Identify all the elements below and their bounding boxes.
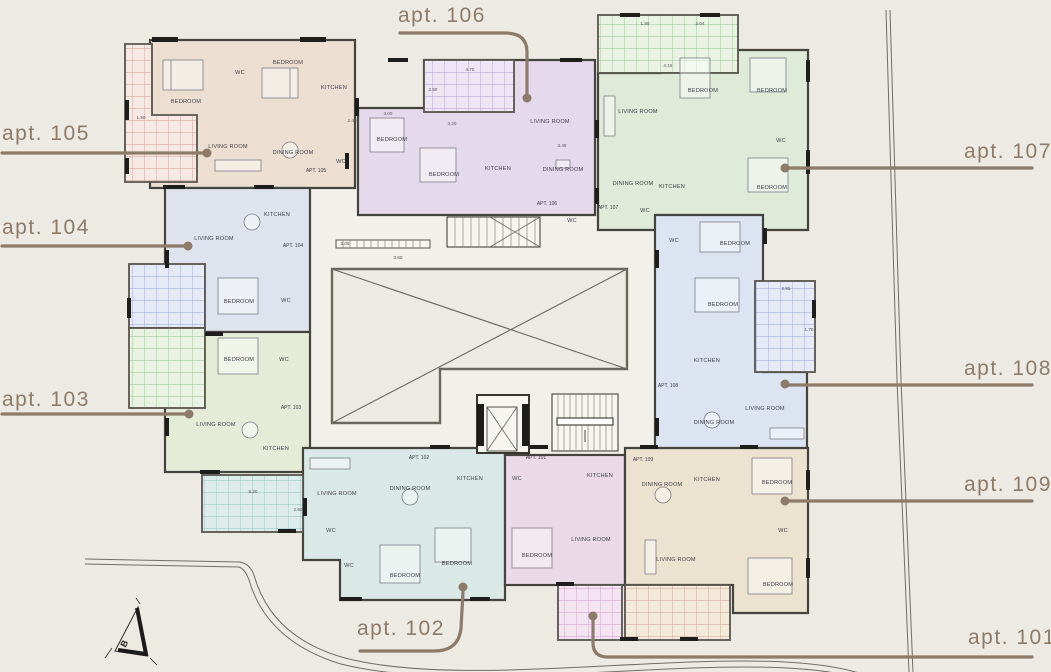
dot-apt-101 xyxy=(589,612,598,621)
stairs-bottom xyxy=(552,394,618,451)
callout-apt-106[interactable]: apt. 106 xyxy=(398,4,486,28)
floor-plan-drawing: BEDROOM WC BEDROOM KITCHEN LIVING ROOM D… xyxy=(0,0,1051,672)
room-label: KITCHEN xyxy=(659,184,685,190)
floor-plan-canvas: BEDROOM WC BEDROOM KITCHEN LIVING ROOM D… xyxy=(0,0,1051,672)
room-label: LIVING ROOM xyxy=(656,557,696,563)
north-arrow-label: B xyxy=(118,638,130,649)
room-label: KITCHEN xyxy=(485,166,511,172)
apt-tag-107: APT. 107 xyxy=(598,205,619,211)
room-label: BEDROOM xyxy=(757,88,787,94)
dim-label: 1.80 xyxy=(641,21,650,26)
room-label: BEDROOM xyxy=(522,553,552,559)
room-label: BEDROOM xyxy=(390,573,420,579)
balcony-apt-104[interactable] xyxy=(129,264,205,328)
dim-label: 5.20 xyxy=(249,489,258,494)
dot-apt-104 xyxy=(184,242,193,251)
room-label: KITCHEN xyxy=(457,476,483,482)
dot-apt-108 xyxy=(781,380,790,389)
room-label: BEDROOM xyxy=(171,99,201,105)
room-label: WC xyxy=(567,218,577,224)
room-label: WC xyxy=(344,563,354,569)
dim-label: 1.50 xyxy=(137,115,146,120)
room-label: LIVING ROOM xyxy=(196,422,236,428)
dim-label: 2.50 xyxy=(429,87,438,92)
apt-tag-106: APT. 106 xyxy=(537,201,558,207)
callout-apt-104[interactable]: apt. 104 xyxy=(2,216,90,240)
room-label: DINING ROOM xyxy=(390,486,431,492)
room-label: DINING ROOM xyxy=(694,420,735,426)
callout-apt-109[interactable]: apt. 109 xyxy=(964,473,1051,497)
room-label: WC xyxy=(235,70,245,76)
room-label: KITCHEN xyxy=(587,473,613,479)
callout-apt-108[interactable]: apt. 108 xyxy=(964,357,1051,381)
callout-apt-103[interactable]: apt. 103 xyxy=(2,388,90,412)
apt-tag-101: APT. 101 xyxy=(526,455,547,461)
room-label: WC xyxy=(336,159,346,165)
elevator xyxy=(477,395,529,453)
room-label: KITCHEN xyxy=(694,477,720,483)
dim-label: 3.20 xyxy=(448,121,457,126)
callout-apt-102[interactable]: apt. 102 xyxy=(357,617,445,641)
balcony-apt-103-side[interactable] xyxy=(129,328,205,408)
balcony-apt-101[interactable] xyxy=(558,585,622,640)
room-label: LIVING ROOM xyxy=(208,144,248,150)
dim-label: 2.90 xyxy=(294,507,303,512)
room-label: WC xyxy=(669,238,679,244)
dim-label: 4.15 xyxy=(664,63,673,68)
apt-tag-102: APT. 102 xyxy=(409,455,430,461)
dim-label: 2.40 xyxy=(348,118,357,123)
callout-apt-101[interactable]: apt. 101 xyxy=(968,626,1051,650)
north-arrow: B xyxy=(105,598,157,665)
room-label: BEDROOM xyxy=(688,88,718,94)
room-label: BEDROOM xyxy=(763,582,793,588)
dim-label: 4.70 xyxy=(466,67,475,72)
dot-apt-107 xyxy=(781,164,790,173)
room-label: BEDROOM xyxy=(377,137,407,143)
room-label: LIVING ROOM xyxy=(194,236,234,242)
room-label: BEDROOM xyxy=(442,561,472,567)
dim-label: 3.60 xyxy=(394,255,403,260)
dim-label: 2.95 xyxy=(782,286,791,291)
apt-tag-109: APT. 109 xyxy=(633,457,654,463)
dim-label: 3.00 xyxy=(384,111,393,116)
dim-label: 1.70 xyxy=(805,327,814,332)
dot-apt-106 xyxy=(523,94,532,103)
room-label: KITCHEN xyxy=(694,358,720,364)
room-label: WC xyxy=(512,476,522,482)
dim-label: 2.04 xyxy=(696,21,705,26)
room-label: DINING ROOM xyxy=(613,181,654,187)
room-label: BEDROOM xyxy=(720,241,750,247)
room-label: KITCHEN xyxy=(321,85,347,91)
room-label: BEDROOM xyxy=(273,60,303,66)
room-label: LIVING ROOM xyxy=(618,109,658,115)
room-label: LIVING ROOM xyxy=(530,119,570,125)
callout-apt-105[interactable]: apt. 105 xyxy=(2,122,90,146)
room-label: BEDROOM xyxy=(708,302,738,308)
room-label: WC xyxy=(778,528,788,534)
room-label: WC xyxy=(640,208,650,214)
apt-tag-108: APT. 108 xyxy=(658,383,679,389)
dim-label: 3.05 xyxy=(341,241,350,246)
room-label: BEDROOM xyxy=(224,357,254,363)
room-label: DINING ROOM xyxy=(642,482,683,488)
apt-tag-103: APT. 103 xyxy=(281,405,302,411)
balcony-apt-103-bottom[interactable] xyxy=(202,475,303,532)
room-label: LIVING ROOM xyxy=(745,406,785,412)
dot-apt-109 xyxy=(781,497,790,506)
room-label: BEDROOM xyxy=(762,480,792,486)
room-label: LIVING ROOM xyxy=(571,537,611,543)
room-label: BEDROOM xyxy=(757,185,787,191)
dot-apt-105 xyxy=(203,149,212,158)
room-label: WC xyxy=(281,298,291,304)
room-label: BEDROOM xyxy=(224,299,254,305)
callout-apt-107[interactable]: apt. 107 xyxy=(964,140,1051,164)
room-label: BEDROOM xyxy=(429,172,459,178)
dim-label: 3.45 xyxy=(558,143,567,148)
room-label: LIVING ROOM xyxy=(317,491,357,497)
room-label: WC xyxy=(776,138,786,144)
room-label: KITCHEN xyxy=(264,212,290,218)
room-label: DINING ROOM xyxy=(543,167,584,173)
apt-tag-104: APT. 104 xyxy=(283,243,304,249)
common-area-core xyxy=(430,370,655,455)
room-label: DINING ROOM xyxy=(273,150,314,156)
apt-tag-105: APT. 105 xyxy=(306,168,327,174)
dot-apt-102 xyxy=(459,583,468,592)
balcony-apt-109[interactable] xyxy=(625,585,730,640)
room-label: KITCHEN xyxy=(263,446,289,452)
room-label: WC xyxy=(326,528,336,534)
room-label: WC xyxy=(279,357,289,363)
dot-apt-103 xyxy=(185,410,194,419)
